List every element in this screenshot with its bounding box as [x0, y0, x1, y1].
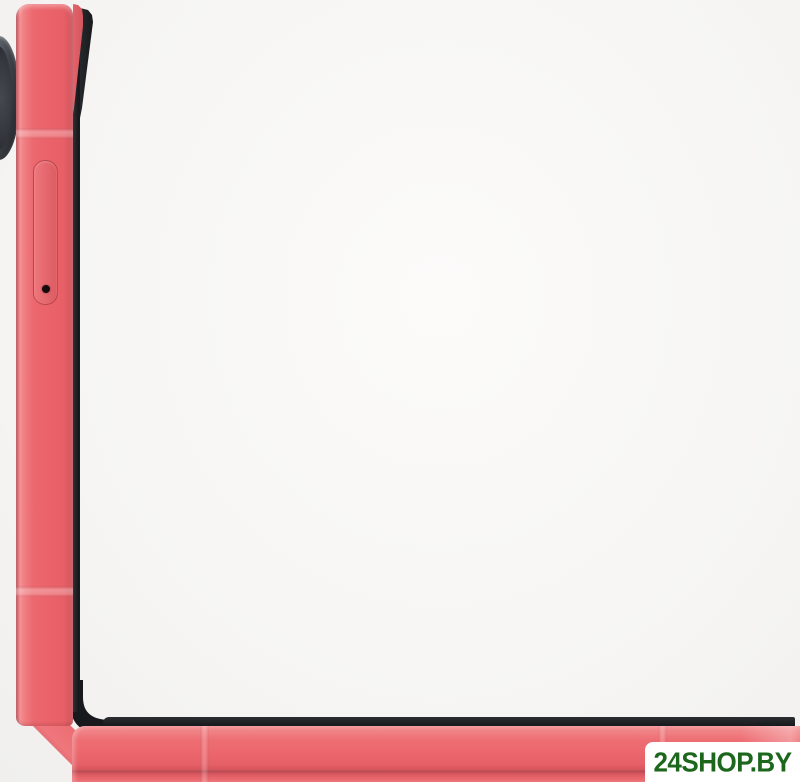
- sim-eject-hole: [42, 285, 50, 293]
- watermark-text: 24SHOP.BY: [653, 748, 791, 776]
- watermark: 24SHOP.BY: [645, 742, 800, 782]
- product-photo: 24SHOP.BY: [0, 0, 800, 782]
- antenna-line-top-2: [16, 586, 73, 597]
- screen-edge-top-half: [73, 8, 80, 712]
- sim-tray: [33, 160, 58, 305]
- phone-top-half-frame: [16, 4, 73, 726]
- antenna-line-top-1: [16, 128, 73, 139]
- antenna-line-bottom-1: [200, 726, 209, 782]
